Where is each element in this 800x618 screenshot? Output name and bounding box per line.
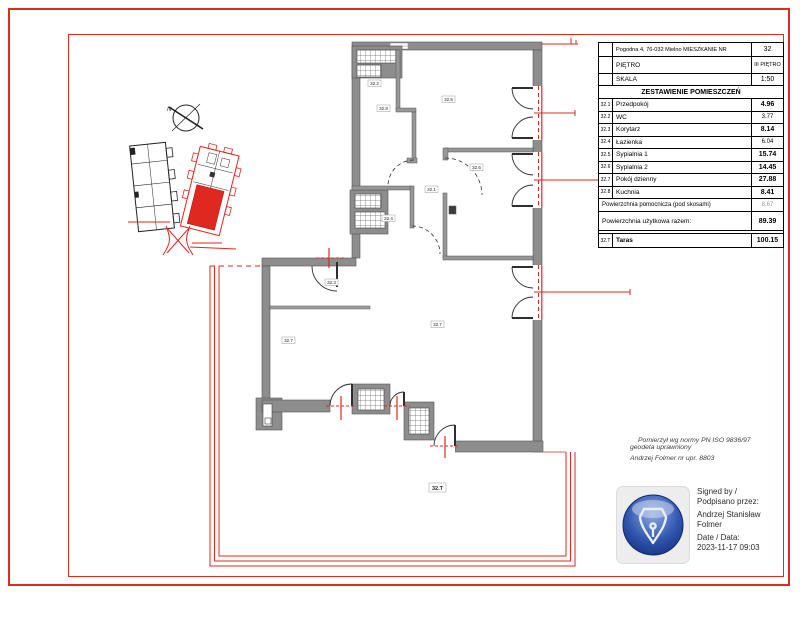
- table-row-floor: PIĘTRO III PIĘTRO: [599, 57, 783, 74]
- signer-name: Folmer: [697, 520, 792, 530]
- table-row: 32.5Sypialnia 115.74: [599, 149, 783, 162]
- signature-stamp: [616, 486, 690, 564]
- room-label: 32.8: [379, 106, 388, 111]
- table-row-address: Pogodna 4, 76-032 Mielno MIESZKANIE NR 3…: [599, 43, 783, 57]
- table-row: 32.8Kuchnia8.41: [599, 187, 783, 200]
- table-row-terrace: 32.T Taras 100.15: [599, 234, 783, 247]
- balcony-doors: [512, 88, 533, 318]
- apartment-number: 32: [752, 43, 783, 56]
- site-plan: N: [128, 104, 245, 255]
- signature-text: Signed by / Podpisano przez: Andrzej Sta…: [697, 487, 792, 552]
- north-label: N: [167, 107, 172, 113]
- date-value: 2023-11-17 09:03: [697, 543, 792, 553]
- note-line: Andrzej Folmer nr upr. 8803: [630, 455, 790, 462]
- drawing-sheet: N: [0, 0, 800, 618]
- room-label: 32.3: [327, 280, 336, 285]
- info-table: Pogodna 4, 76-032 Mielno MIESZKANIE NR 3…: [598, 42, 784, 248]
- room-labels: 32.2 32.8 32.5 32.6 32.4 32.1 32.3 32.7 …: [282, 80, 483, 492]
- floor-value: III PIĘTRO: [752, 57, 783, 73]
- compass-icon: N: [167, 104, 203, 131]
- room-label: 32.1: [427, 187, 436, 192]
- table-row: 32.7Pokój dzienny27.88: [599, 174, 783, 187]
- table-row: 32.6Sypialnia 214.45: [599, 162, 783, 175]
- scale-value: 1:50: [752, 74, 783, 85]
- table-row-auxiliary: Powierzchnia pomocnicza (pod skosami) 8.…: [599, 199, 783, 212]
- table-row: 32.1Przedpokój4.96: [599, 99, 783, 112]
- shafts: [263, 46, 429, 434]
- pen-nib-icon: [621, 493, 685, 557]
- note-line: Pomierzył wg normy PN ISO 9836/97: [638, 437, 790, 444]
- table-row: 32.4Łazienka6.04: [599, 137, 783, 150]
- note-line: geodeta uprawniony: [630, 444, 790, 451]
- room-label: 32.5: [444, 97, 453, 102]
- signer-name: Andrzej Stanisław: [697, 510, 792, 520]
- room-label: 32.4: [384, 216, 393, 221]
- signed-by-line: Podpisano przez:: [697, 497, 792, 507]
- doors-dashed: [388, 158, 482, 254]
- table-row: 32.3Korytarz8.14: [599, 124, 783, 137]
- site-building-b: [176, 140, 246, 237]
- scale-label: SKALA: [613, 74, 752, 85]
- address-label: Pogodna 4, 76-032 Mielno MIESZKANIE NR: [613, 43, 752, 56]
- surveyor-notes: Pomierzył wg normy PN ISO 9836/97 geodet…: [630, 437, 790, 462]
- signed-by-line: Signed by /: [697, 487, 792, 497]
- date-label: Date / Data:: [697, 533, 792, 543]
- table-row-total: Powierzchnia użytkowa razem: 89.39: [599, 212, 783, 231]
- floor-label: PIĘTRO: [613, 57, 752, 73]
- room-label: 32.7: [284, 338, 293, 343]
- terrace-label: 32.T: [432, 486, 444, 492]
- section-title: ZESTAWIENIE POMIESZCZEŃ: [599, 86, 783, 98]
- table-row-scale: SKALA 1:50: [599, 74, 783, 86]
- room-label: 32.2: [370, 81, 379, 86]
- room-label: 32.7: [433, 322, 442, 327]
- table-row: 32.2WC3.77: [599, 112, 783, 125]
- interior-walls: [270, 50, 533, 309]
- balcony-openings: [434, 86, 543, 452]
- room-label: 32.6: [472, 165, 481, 170]
- site-building-a: [130, 142, 181, 232]
